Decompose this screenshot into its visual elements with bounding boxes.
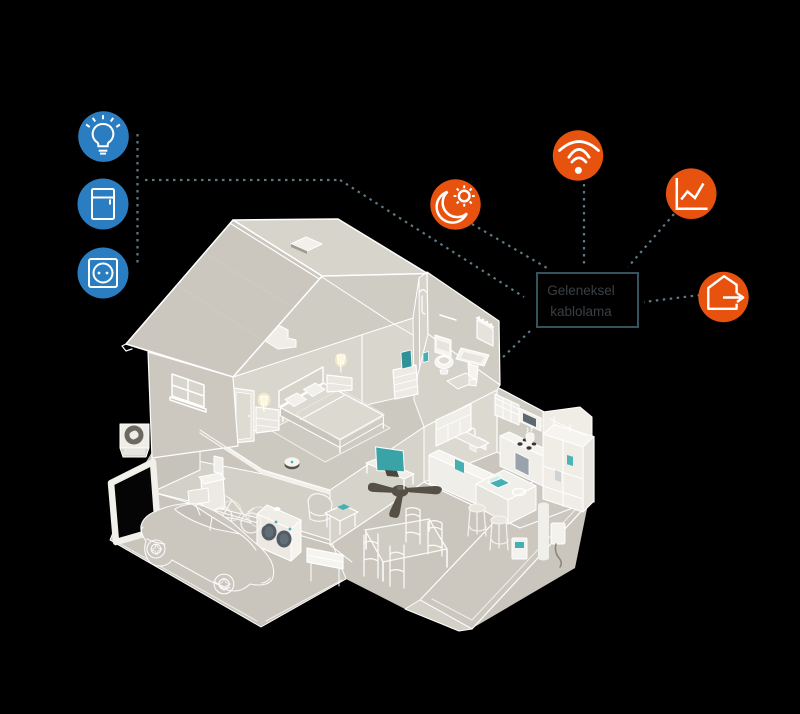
svg-text:kablolama: kablolama bbox=[550, 304, 612, 319]
svg-text:Geleneksel: Geleneksel bbox=[547, 283, 615, 298]
